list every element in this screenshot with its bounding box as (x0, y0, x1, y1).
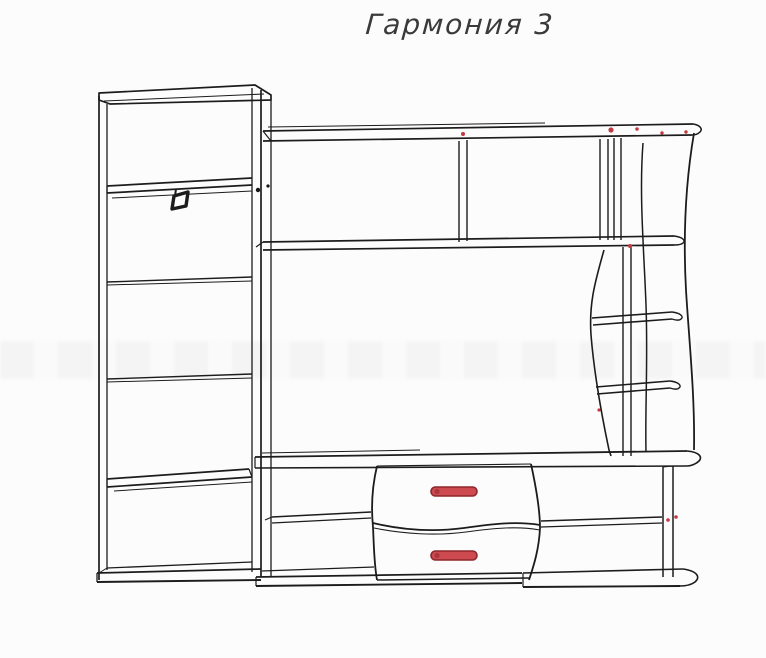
drawer-handle-top[interactable] (431, 487, 477, 496)
drawer-unit (372, 464, 540, 580)
drawer-handle-bottom[interactable] (431, 551, 477, 560)
furniture-diagram (0, 0, 766, 658)
left-cabinet (97, 85, 271, 582)
page: Гармония 3 (0, 0, 766, 658)
right-curved-shelf-unit (591, 133, 695, 456)
door-handle-icon (172, 189, 188, 209)
upper-shelf-unit (256, 123, 701, 250)
tv-stand (255, 450, 701, 587)
